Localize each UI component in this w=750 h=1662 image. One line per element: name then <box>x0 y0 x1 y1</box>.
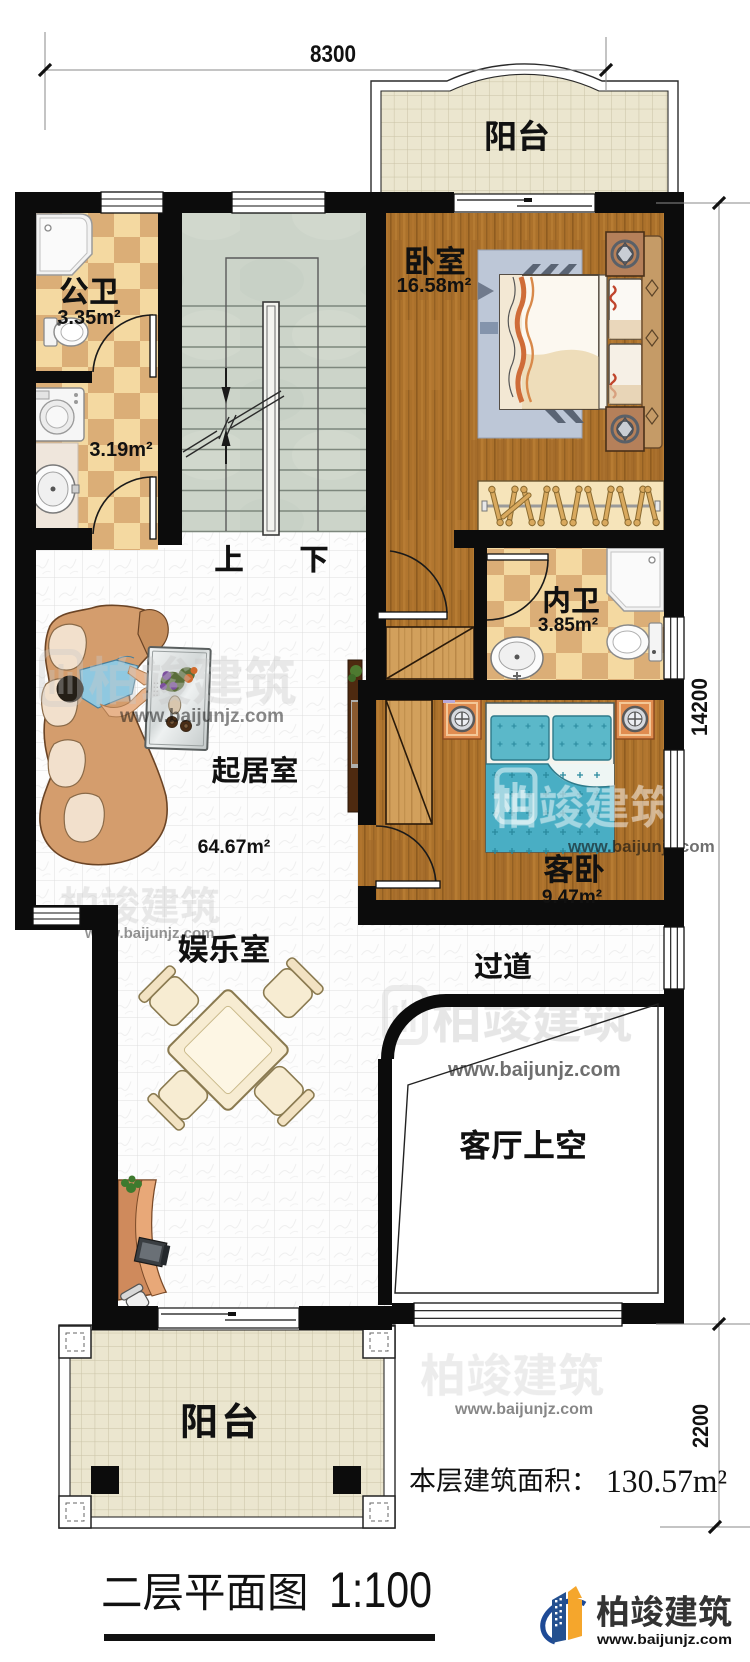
svg-text:www.baijunjz.com: www.baijunjz.com <box>119 706 284 727</box>
svg-text:8300: 8300 <box>310 41 356 68</box>
svg-text:3.19m²: 3.19m² <box>89 439 153 461</box>
svg-text:www.baijunjz.com: www.baijunjz.com <box>596 1632 732 1647</box>
svg-text:16.58m²: 16.58m² <box>397 275 472 297</box>
svg-text:64.67m²: 64.67m² <box>198 836 271 858</box>
svg-text:www.baijunjz.com: www.baijunjz.com <box>567 837 715 856</box>
svg-text:www.baijunjz.com: www.baijunjz.com <box>447 1059 621 1081</box>
svg-text:1:100: 1:100 <box>329 1562 432 1618</box>
svg-text:2200: 2200 <box>688 1404 713 1448</box>
svg-text:130.57m²: 130.57m² <box>606 1464 727 1500</box>
svg-text:3.85m²: 3.85m² <box>538 615 598 636</box>
svg-text:3.35m²: 3.35m² <box>57 307 121 329</box>
svg-text:9.47m²: 9.47m² <box>542 887 602 908</box>
svg-text:14200: 14200 <box>687 678 712 736</box>
svg-text:www.baijunjz.com: www.baijunjz.com <box>454 1401 593 1418</box>
